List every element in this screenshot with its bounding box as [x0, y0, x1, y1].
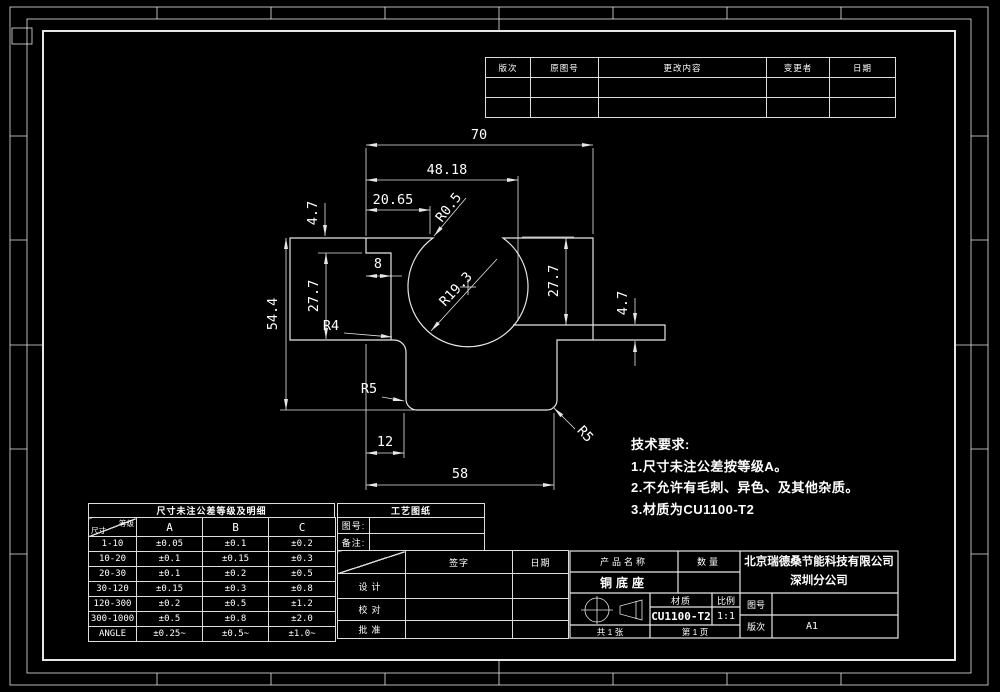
dimension-arrow	[284, 238, 288, 249]
tolerance-col-b: B	[203, 518, 269, 537]
dimension-arrow	[323, 225, 327, 236]
dimension-label: 70	[471, 127, 487, 143]
tolerance-row: ANGLE±0.25~±0.5~±1.0~	[89, 627, 336, 642]
company-line2: 深圳分公司	[740, 572, 898, 591]
dimension-arrow	[366, 274, 377, 278]
tolerance-row: 120-300±0.2±0.5±1.2	[89, 597, 336, 612]
revision-cell	[599, 98, 767, 118]
tolerance-header-row: 等级 尺寸 A B C	[89, 518, 336, 537]
dimension-label: R0.5	[433, 190, 466, 225]
corner-size-label: 尺寸	[91, 525, 106, 536]
tolerance-range: 10-20	[89, 552, 137, 567]
tolerance-row: 30-120±0.15±0.3±0.8	[89, 582, 336, 597]
revision-cell	[531, 98, 599, 118]
revision-table: 版次原图号更改内容变更者日期	[485, 57, 896, 118]
revision-header-cell: 原图号	[531, 58, 599, 78]
tolerance-row: 20-30±0.1±0.2±0.5	[89, 567, 336, 582]
company-name: 北京瑞德桑节能科技有限公司 深圳分公司	[740, 553, 898, 593]
revision-cell	[486, 98, 531, 118]
dimension-label: R4	[323, 318, 339, 334]
tolerance-value: ±0.5~	[203, 627, 269, 642]
material-value: CU1100-T2	[650, 607, 712, 625]
tolerance-value: ±0.25~	[137, 627, 203, 642]
signature-table: 签字 日期 设计校对批准	[337, 550, 569, 639]
tolerance-value: ±0.3	[269, 552, 336, 567]
dimension-label: 58	[452, 466, 468, 482]
tolerance-value: ±1.0~	[269, 627, 336, 642]
revision-label: 版次	[740, 615, 772, 638]
signature-cell	[513, 599, 569, 621]
dimension-arrow	[507, 178, 518, 182]
dimension-label: 27.7	[546, 265, 562, 298]
part-outline	[290, 238, 665, 410]
signature-row: 校对	[338, 599, 569, 621]
tolerance-value: ±0.2	[269, 537, 336, 552]
dimension-arrow	[633, 341, 637, 352]
dimension-arrow	[366, 451, 377, 455]
dimension-label: 20.65	[373, 192, 414, 208]
dimension-label: 27.7	[306, 280, 322, 313]
technical-requirements: 技术要求: 1.尺寸未注公差按等级A。2.不允许有毛刺、异色、及其他杂质。3.材…	[631, 434, 871, 520]
revision-row	[486, 78, 896, 98]
dimension-arrow	[564, 238, 568, 249]
tolerance-value: ±0.8	[269, 582, 336, 597]
dimension-arrow	[543, 483, 554, 487]
remark-field: 备注:	[337, 533, 485, 551]
revision-cell	[830, 78, 896, 98]
signature-cell	[406, 621, 513, 639]
tolerance-value: ±1.2	[269, 597, 336, 612]
tolerance-range: 1-10	[89, 537, 137, 552]
dimension-arrow	[380, 274, 391, 278]
zone-box	[12, 28, 32, 44]
dimension-arrow	[393, 451, 404, 455]
tech-requirement-item: 3.材质为CU1100-T2	[631, 499, 871, 521]
tolerance-range: 30-120	[89, 582, 137, 597]
tolerance-value: ±0.8	[203, 612, 269, 627]
revision-header-cell: 日期	[830, 58, 896, 78]
tolerance-range: 20-30	[89, 567, 137, 582]
signature-role-label: 批准	[338, 621, 406, 639]
tolerance-range: 120-300	[89, 597, 137, 612]
dimension-arrow	[582, 143, 593, 147]
slot-edge	[366, 238, 391, 340]
sheet-count: 共 1 张	[570, 625, 650, 638]
signature-corner-cell	[338, 551, 406, 574]
dimension-label: 12	[377, 434, 393, 450]
dimension-label: 48.18	[427, 162, 468, 178]
signature-header-row: 签字 日期	[338, 551, 569, 574]
tolerance-value: ±0.3	[203, 582, 269, 597]
dimension-arrow	[284, 399, 288, 410]
page-number: 第 1 页	[650, 625, 740, 638]
revision-value: A1	[772, 615, 852, 638]
dimension-arrow	[366, 178, 377, 182]
tolerance-value: ±2.0	[269, 612, 336, 627]
projection-symbol-icon	[581, 596, 642, 624]
revision-cell	[486, 78, 531, 98]
revision-cell	[767, 98, 830, 118]
dimension-label: R5	[574, 423, 597, 446]
cad-drawing-sheet: { "revision_table": { "headers": ["版次", …	[0, 0, 1000, 692]
tolerance-value: ±0.5	[269, 567, 336, 582]
drawing-no-field: 图号:	[337, 517, 485, 534]
signature-cell	[513, 621, 569, 639]
dimension-label: 4.7	[615, 291, 631, 315]
signature-role-label: 校对	[338, 599, 406, 621]
tolerance-row: 300-1000±0.5±0.8±2.0	[89, 612, 336, 627]
company-line1: 北京瑞德桑节能科技有限公司	[740, 553, 898, 572]
dimension-arrow	[393, 397, 405, 403]
revision-header-cell: 版次	[486, 58, 531, 78]
dimension-arrow	[324, 253, 328, 264]
dimension-arrow	[366, 483, 377, 487]
material-label: 材质	[650, 593, 712, 607]
dimension-arrow	[366, 208, 377, 212]
dimension-arrow	[366, 143, 377, 147]
remark-label: 备注:	[338, 534, 370, 550]
tolerance-table: 等级 尺寸 A B C 1-10±0.05±0.1±0.210-20±0.1±0…	[88, 517, 336, 642]
revision-cell	[531, 78, 599, 98]
tech-requirement-item: 2.不允许有毛刺、异色、及其他杂质。	[631, 477, 871, 499]
process-block-title: 工艺图纸	[337, 503, 485, 518]
scale-value: 1:1	[712, 607, 740, 625]
dimension-label: 54.4	[265, 298, 281, 331]
signature-cell	[406, 599, 513, 621]
revision-header-row: 版次原图号更改内容变更者日期	[486, 58, 896, 78]
date-column-header: 日期	[513, 551, 569, 574]
signature-cell	[513, 574, 569, 599]
tolerance-range: ANGLE	[89, 627, 137, 642]
tolerance-value: ±0.05	[137, 537, 203, 552]
revision-header-cell: 变更者	[767, 58, 830, 78]
tolerance-value: ±0.2	[137, 597, 203, 612]
tolerance-value: ±0.5	[203, 597, 269, 612]
drawing-number-label: 图号	[740, 593, 772, 615]
tech-requirement-item: 1.尺寸未注公差按等级A。	[631, 456, 871, 478]
revision-cell	[767, 78, 830, 98]
drawing-no-label: 图号:	[338, 518, 370, 533]
signature-role-label: 设计	[338, 574, 406, 599]
tolerance-row: 1-10±0.05±0.1±0.2	[89, 537, 336, 552]
tolerance-range: 300-1000	[89, 612, 137, 627]
dimension-label: 4.7	[305, 201, 321, 225]
tolerance-value: ±0.2	[203, 567, 269, 582]
product-name-label: 产品名称	[570, 551, 678, 572]
quantity-label: 数量	[678, 551, 740, 572]
tolerance-value: ±0.1	[203, 537, 269, 552]
tech-requirements-title: 技术要求:	[631, 434, 871, 456]
tolerance-row: 10-20±0.1±0.15±0.3	[89, 552, 336, 567]
tolerance-col-c: C	[269, 518, 336, 537]
revision-cell	[830, 98, 896, 118]
corner-grade-label: 等级	[119, 518, 134, 529]
tolerance-table-title: 尺寸未注公差等级及明细	[88, 503, 335, 518]
dimension-label: 8	[374, 256, 382, 272]
tolerance-value: ±0.1	[137, 552, 203, 567]
tolerance-value: ±0.5	[137, 612, 203, 627]
dimension-arrow	[419, 208, 430, 212]
signature-cell	[406, 574, 513, 599]
dimension-arrow	[633, 313, 637, 324]
tolerance-value: ±0.1	[137, 567, 203, 582]
revision-cell	[599, 78, 767, 98]
scale-label: 比例	[712, 593, 740, 607]
revision-row	[486, 98, 896, 118]
signature-row: 批准	[338, 621, 569, 639]
signature-row: 设计	[338, 574, 569, 599]
tolerance-corner-cell: 等级 尺寸	[89, 518, 137, 537]
dimension-label: R5	[361, 381, 377, 397]
revision-header-cell: 更改内容	[599, 58, 767, 78]
product-name-value: 铜底座	[570, 572, 678, 593]
dimension-arrow	[564, 314, 568, 325]
sign-column-header: 签字	[406, 551, 513, 574]
tolerance-col-a: A	[137, 518, 203, 537]
tolerance-value: ±0.15	[203, 552, 269, 567]
tolerance-value: ±0.15	[137, 582, 203, 597]
